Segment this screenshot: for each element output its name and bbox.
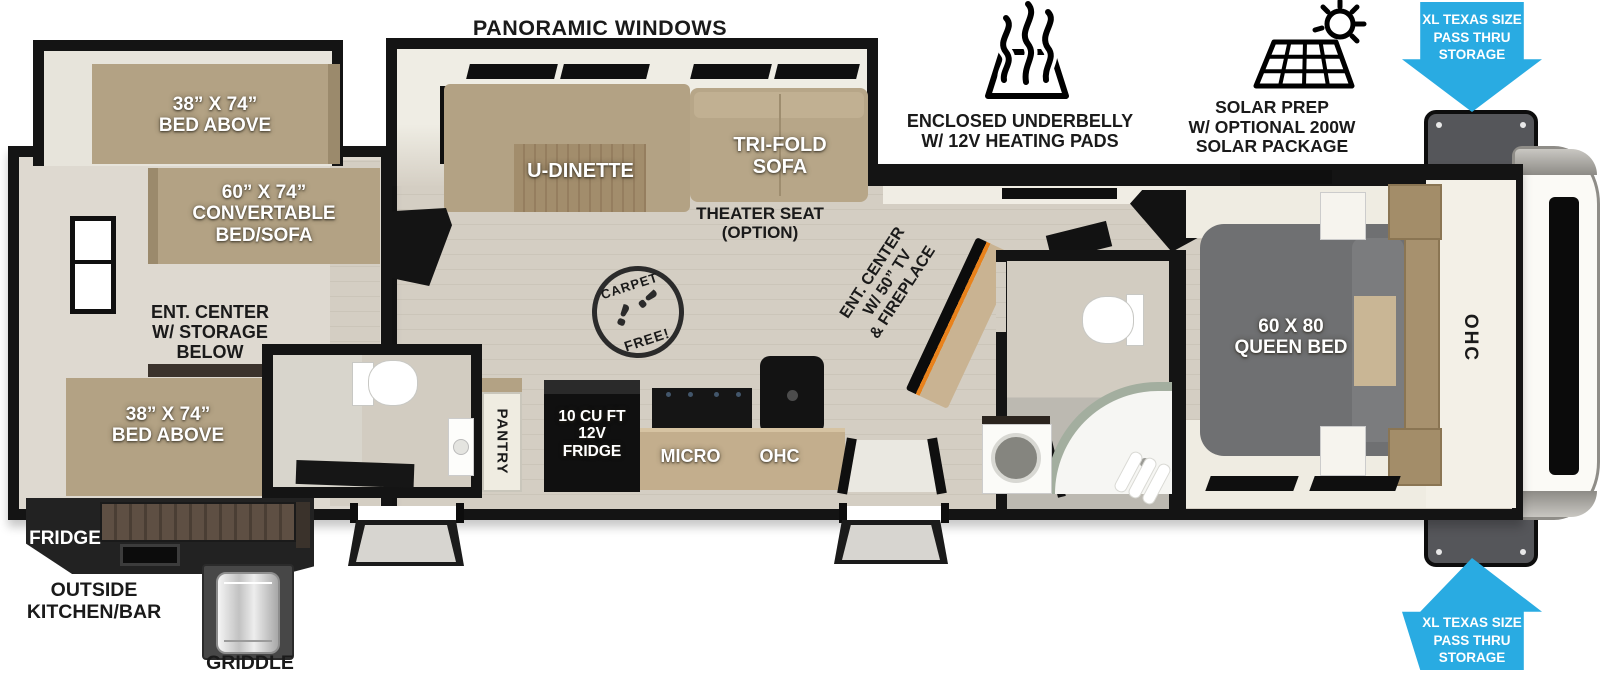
front-cap-trim-bottom [1515, 491, 1597, 517]
nightstand-top [1320, 192, 1366, 240]
enclosed-underbelly-label: ENCLOSED UNDERBELLY W/ 12V HEATING PADS [885, 111, 1155, 151]
panoramic-windows-label: PANORAMIC WINDOWS [420, 16, 780, 40]
entry-step-1 [348, 520, 464, 566]
outside-kitchen-vent [120, 544, 180, 566]
half-bath-toilet-bowl [368, 360, 418, 406]
bedroom-cabinet-upper [1388, 184, 1442, 240]
u-dinette-label: U-DINETTE [498, 160, 663, 182]
outside-kitchen-bar-label: OUTSIDE KITCHEN/BAR [4, 580, 184, 624]
door-jamb [941, 503, 949, 523]
convertible-bed-label: 60” X 74” CONVERTABLE BED/SOFA [150, 182, 378, 246]
pass-thru-storage-bottom-label: XL TEXAS SIZE PASS THRU STORAGE [1402, 614, 1542, 667]
entry-door-opening-2 [846, 506, 942, 522]
bedroom-window-bottom-2 [1309, 476, 1400, 491]
pantry-label: PANTRY [494, 392, 511, 492]
pass-thru-arrow-bottom: XL TEXAS SIZE PASS THRU STORAGE [1402, 558, 1542, 670]
entry-landing [846, 440, 938, 492]
entry-step-2 [834, 520, 948, 564]
bunk-bed-bottom-label: 38” X 74” BED ABOVE [68, 404, 268, 447]
outside-kitchen-bar-side [296, 502, 310, 548]
kitchen-ohc-label: OHC [742, 446, 817, 467]
griddle-label: GRIDDLE [192, 652, 308, 675]
solar-prep-icon [1240, 0, 1368, 98]
bedroom-wall [1174, 250, 1186, 520]
front-cap-trim-top [1515, 149, 1597, 175]
nightstand-bottom [1320, 426, 1366, 476]
bathroom-vanity [982, 424, 1052, 494]
pass-thru-storage-top-label: XL TEXAS SIZE PASS THRU STORAGE [1402, 11, 1542, 64]
front-window [1549, 197, 1579, 475]
front-cap [1512, 146, 1600, 520]
half-bath-counter [296, 460, 415, 488]
window-divider [75, 260, 111, 264]
door-jamb [456, 503, 464, 523]
entry-door-opening-1 [356, 506, 460, 522]
bedroom-window-top [1240, 170, 1332, 184]
micro-label: MICRO [648, 446, 733, 467]
main-bath-toilet-bowl [1082, 296, 1134, 344]
panoramic-window-4 [774, 64, 860, 79]
bunk-room-window [70, 216, 116, 314]
outside-fridge-label: FRIDGE [24, 528, 106, 550]
tri-fold-sofa-label: TRI-FOLD SOFA [700, 134, 860, 179]
bedroom-window-bottom-1 [1205, 476, 1298, 491]
panoramic-window-1 [466, 64, 558, 79]
pass-thru-arrow-top: XL TEXAS SIZE PASS THRU STORAGE [1402, 2, 1542, 112]
hall-window [1002, 188, 1117, 199]
bedroom-wardrobe [1404, 226, 1440, 454]
panoramic-window-3 [690, 64, 772, 79]
half-bath-sink [448, 418, 474, 476]
queen-bed-label: 60 X 80 QUEEN BED [1206, 316, 1376, 359]
bedroom-ohc-label: OHC [1459, 303, 1481, 373]
panoramic-window-2 [560, 64, 650, 79]
bathroom-door-opening [996, 262, 1006, 332]
griddle [216, 572, 280, 654]
heating-pads-icon [972, 0, 1078, 108]
kitchen-sink-cabinet [760, 356, 824, 434]
floorplan-canvas: PANORAMIC WINDOWS ENCLOSED UNDERBELLY W/… [0, 0, 1600, 693]
solar-prep-label: SOLAR PREP W/ OPTIONAL 200W SOLAR PACKAG… [1162, 98, 1382, 157]
theater-seat-label: THEATER SEAT (OPTION) [680, 204, 840, 242]
outside-kitchen-bar-top [100, 502, 296, 542]
bunk-bed-top-label: 38” X 74” BED ABOVE [105, 94, 325, 137]
kitchen-fridge-label: 10 CU FT 12V FRIDGE [546, 408, 638, 460]
